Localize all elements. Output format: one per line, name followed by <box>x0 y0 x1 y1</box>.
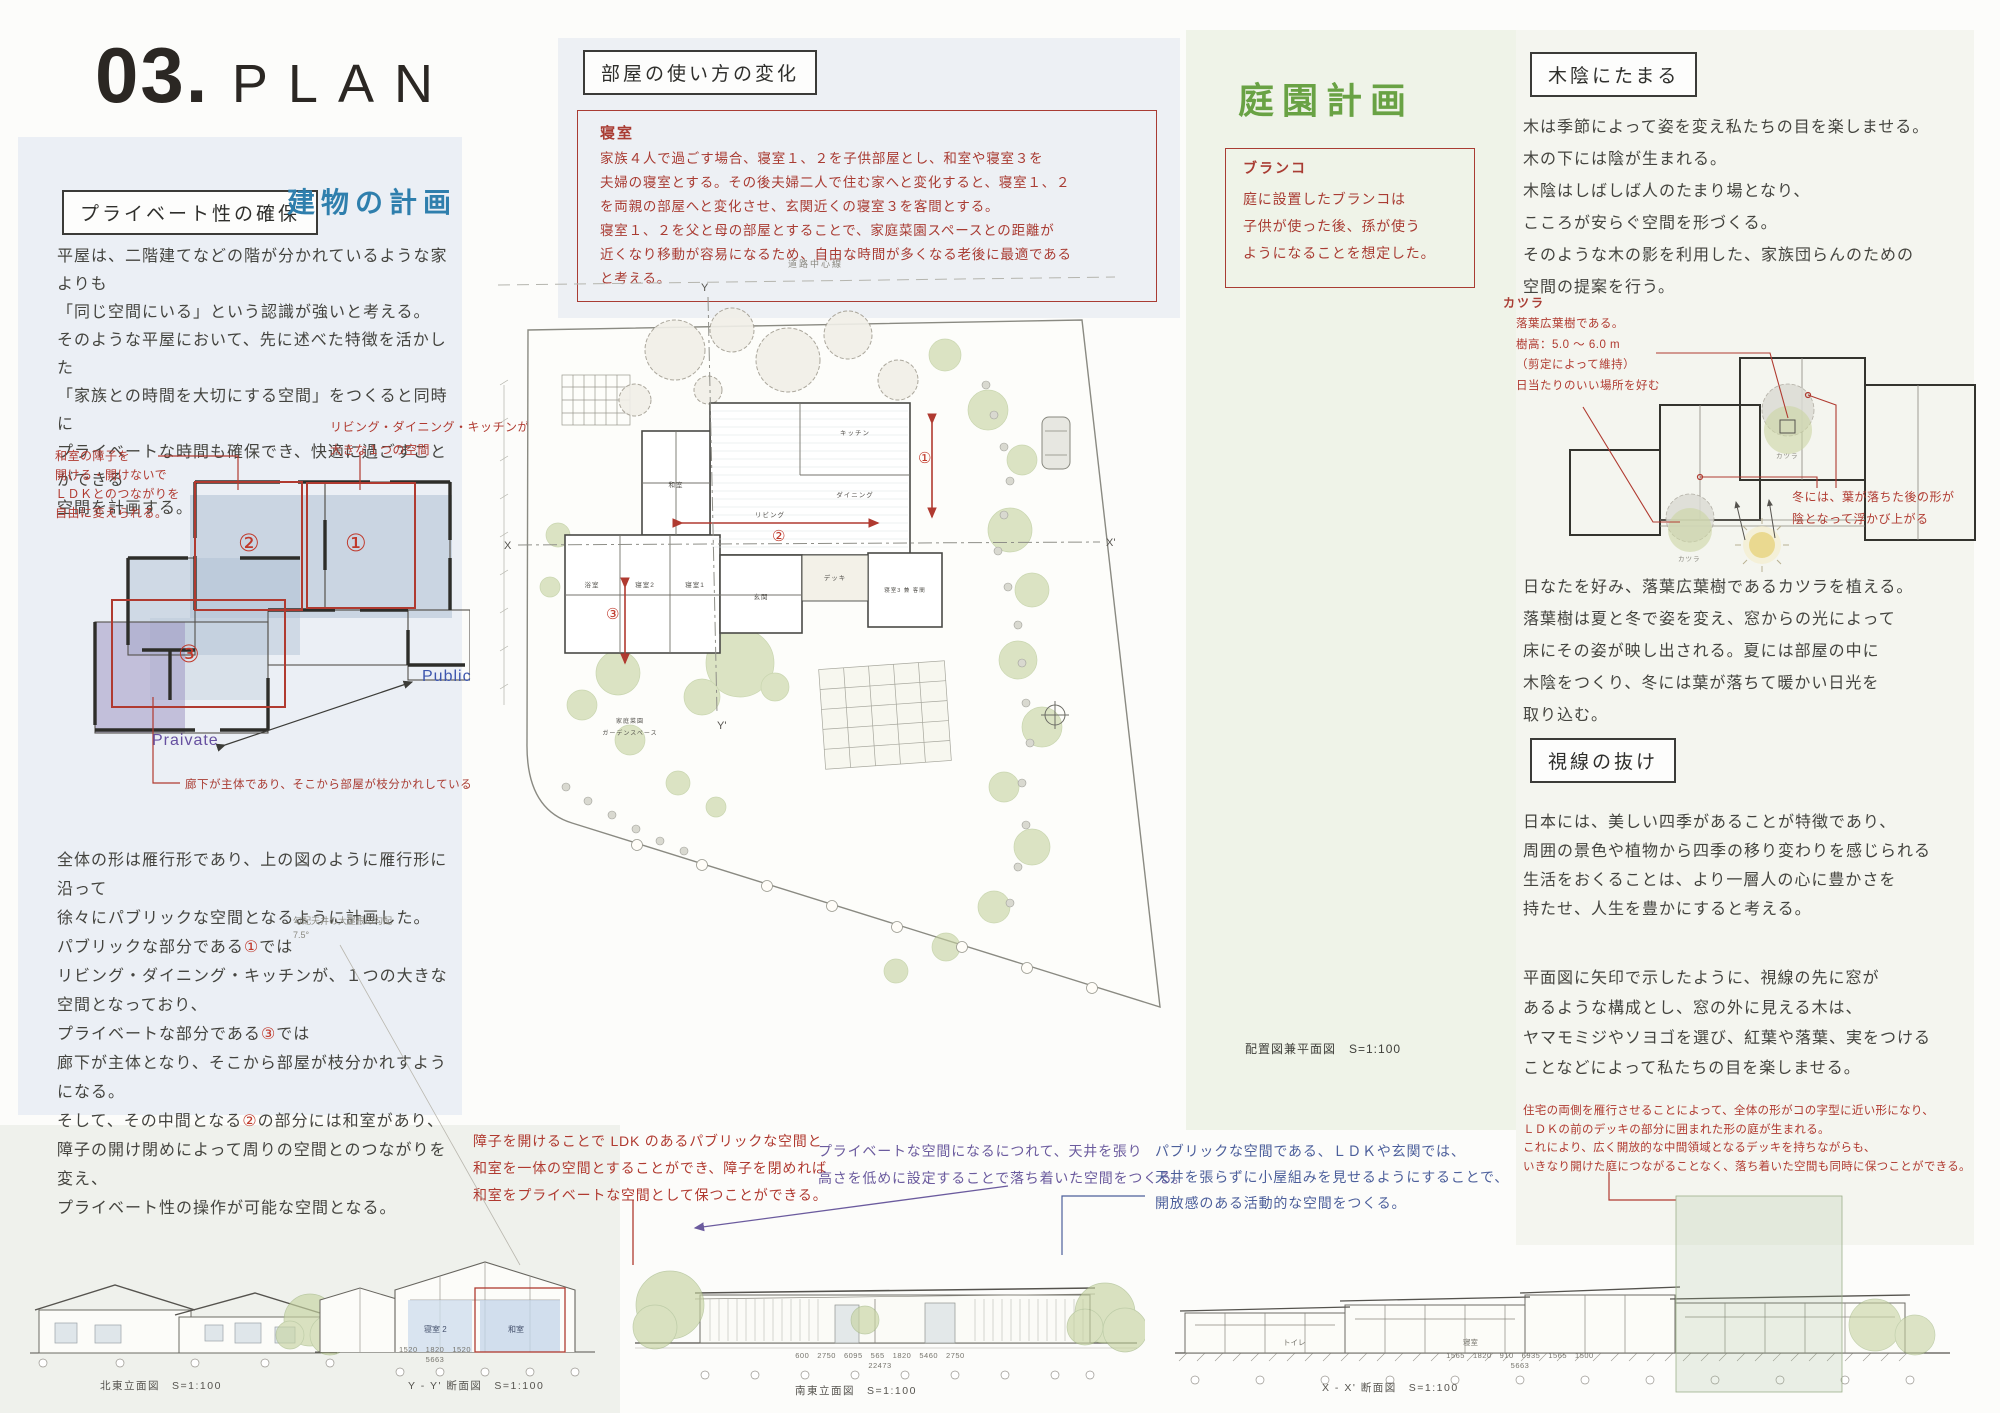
garden-plan-title: 庭園計画 <box>1238 72 1414 124</box>
section-x2-label: X' <box>1106 537 1115 549</box>
room-label-guest: 寝室3 兼 客間 <box>884 586 926 594</box>
private-label: Praivate <box>152 732 219 750</box>
page-title: 03. PLAN <box>95 30 453 121</box>
xx-total-dim: 5663 <box>1240 1361 1800 1370</box>
sun-icon <box>1735 518 1789 572</box>
winter-shadow-note: 冬には、葉が落ちた後の形が 陰となって浮かび上がる <box>1792 486 1955 530</box>
shade-section-header: 木陰にたまる <box>1530 52 1697 97</box>
room-usage-label: 寝室 <box>600 122 634 143</box>
room-label-living: リビング <box>755 510 785 519</box>
katsura-note-label: カツラ <box>1503 294 1545 311</box>
arrow-number-3: ③ <box>606 606 619 623</box>
tree-label-2: カツラ <box>1678 555 1701 563</box>
room-label-bath: 浴室 <box>585 580 600 589</box>
room-label-garden2: ガーデンスペース <box>602 729 657 737</box>
room-label-deck: デッキ <box>824 573 847 582</box>
room-label-kitchen: キッチン <box>840 429 870 437</box>
shade-paragraph-1: 木は季節によって姿を変え私たちの目を楽しませる。 木の下には陰が生まれる。 木陰… <box>1523 112 1963 304</box>
private-ceiling-note: プライベートな空間になるにつれて、天井を張り 高さを低めに設定することで落ち着い… <box>818 1138 1187 1192</box>
car-icon <box>1042 417 1070 469</box>
yy-total-dim: 5663 <box>335 1355 535 1364</box>
ne-elevation-drawing <box>25 1185 345 1370</box>
se-dims: 600 2750 6095 565 1820 5460 2750 <box>690 1350 1070 1361</box>
room-label-bed1: 寝室1 <box>685 580 705 589</box>
room-label-washitsu: 和室 <box>669 480 684 489</box>
sightline-paragraph-1: 日本には、美しい四季があることが特徴であり、 周囲の景色や植物から四季の移り変わ… <box>1523 808 1973 924</box>
room-label-garden1: 家庭菜園 <box>616 717 644 725</box>
room-label-dining: ダイニング <box>836 490 874 499</box>
sightline-paragraph-2: 平面図に矢印で示したように、視線の先に窓が あるような構成とし、窓の外に見える木… <box>1523 964 1973 1084</box>
para2-num1: ① <box>244 939 259 956</box>
title-text: PLAN <box>232 54 453 114</box>
yy-room-label-2: 和室 <box>508 1324 524 1334</box>
swing-label: ブランコ <box>1243 158 1307 178</box>
room-usage-header: 部屋の使い方の変化 <box>583 50 817 95</box>
site-plan-caption: 配置図兼平面図 S=1:100 <box>1245 1040 1401 1057</box>
site-plan-drawing: 道路中心線 <box>470 235 1480 1095</box>
arrow-number-2: ② <box>772 528 785 545</box>
title-number: 03. <box>95 31 209 119</box>
shade-paragraph-2: 日なたを好み、落葉広葉樹であるカツラを植える。 落葉樹は夏と冬で姿を変え、窓から… <box>1523 572 1963 732</box>
section-y-label: Y <box>701 282 709 294</box>
public-label: Public <box>422 668 472 686</box>
se-total-dim: 22473 <box>690 1361 1070 1370</box>
yy-room-label-1: 寝室 2 <box>424 1324 447 1334</box>
section-y2-label: Y' <box>717 720 726 732</box>
zone-number-3: ③ <box>178 641 200 668</box>
sightline-section-header: 視線の抜け <box>1530 738 1676 783</box>
privacy-section-header: プライベート性の確保 <box>62 190 318 235</box>
room-label-bed2: 寝室2 <box>635 580 655 589</box>
yy-section-caption: Y - Y' 断面図 S=1:100 <box>408 1378 544 1393</box>
ne-elevation-caption: 北東立面図 S=1:100 <box>100 1378 222 1393</box>
shade-plan-diagram: カツラ カツラ <box>1540 330 1980 580</box>
building-plan-title: 建物の計画 <box>287 181 457 221</box>
para2-num3: ③ <box>261 1026 276 1043</box>
arrow-number-1: ① <box>918 450 931 467</box>
presentation-board: 03. PLAN プライベート性の確保 建物の計画 平屋は、二階建てなどの階が分… <box>0 0 2000 1413</box>
room-label-entrance: 玄関 <box>754 592 769 601</box>
yy-dims: 1520 1820 1520 <box>335 1344 535 1355</box>
tree-label-1: カツラ <box>1776 452 1799 460</box>
xx-room-label-2: 寝室 <box>1463 1337 1479 1347</box>
section-x-label: X <box>504 540 512 552</box>
gankou-red-note: 住宅の両側を雁行させることによって、全体の形がコの字型に近い形になり、 ＬＤＫの… <box>1523 1102 1975 1176</box>
shoji-annotation: 和室の障子を 開ける・開けないで ＬＤＫとのつながりを 自由に変えられる。 <box>55 447 180 523</box>
se-elevation-caption: 南東立面図 S=1:100 <box>795 1383 917 1398</box>
zone-number-1: ① <box>345 530 367 557</box>
hallway-annotation: 廊下が主体であり、そこから部屋が枝分かれしている <box>185 776 472 792</box>
roof-slope-note: 勾配天井の大屋根の勾配 7.5° <box>293 914 392 942</box>
road-label: 道路中心線 <box>788 258 843 269</box>
xx-dims: 1565 1820 910 6935 1565 1500 <box>1240 1350 1800 1361</box>
xx-room-label-1: トイレ <box>1283 1338 1306 1347</box>
zone-number-2: ② <box>238 530 260 557</box>
para2-num2: ② <box>242 1113 257 1130</box>
xx-section-caption: X - X' 断面図 S=1:100 <box>1322 1380 1459 1395</box>
